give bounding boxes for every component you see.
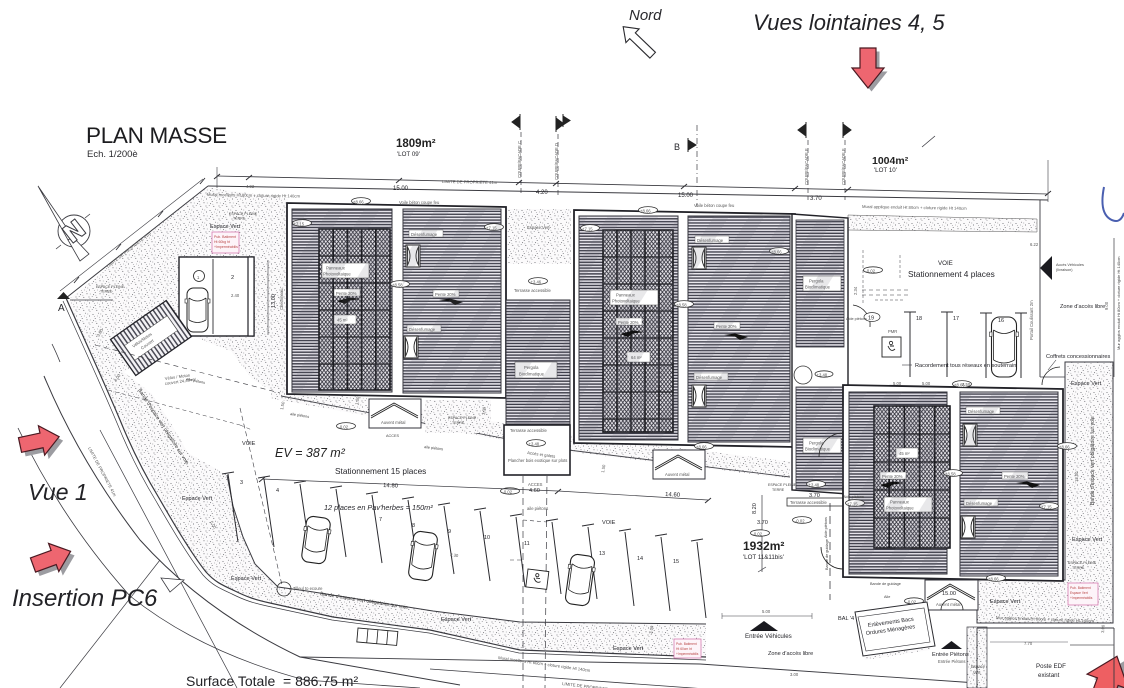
svg-text:Surface Totale = 886.75 m²: Surface Totale = 886.75 m² <box>186 673 358 688</box>
svg-text:1932m²: 1932m² <box>743 539 784 553</box>
svg-text:Entrée Piétons: Entrée Piétons <box>938 659 965 664</box>
svg-text:Ech. 1/200è: Ech. 1/200è <box>87 149 138 160</box>
svg-text:Bande de guidage: Bande de guidage <box>825 539 829 570</box>
svg-text:EV = 387 m²: EV = 387 m² <box>275 446 346 460</box>
svg-text:Voile béton coupe feu: Voile béton coupe feu <box>399 200 440 205</box>
svg-text:4: 4 <box>276 488 279 494</box>
svg-text:'LOT 11&11bis': 'LOT 11&11bis' <box>743 554 784 561</box>
svg-text:Pub. Batiment: Pub. Batiment <box>676 642 697 646</box>
svg-text:Zone d'accès libre: Zone d'accès libre <box>1060 304 1105 310</box>
svg-text:8: 8 <box>412 523 415 529</box>
svg-text:TERRE: TERRE <box>233 217 246 221</box>
svg-text:Espace Vert: Espace Vert <box>527 225 550 230</box>
svg-text:ESPACE PLEINE: ESPACE PLEINE <box>448 416 477 420</box>
svg-text:-0.02: -0.02 <box>795 519 805 524</box>
svg-text:9: 9 <box>448 529 451 535</box>
svg-text:6.22: 6.22 <box>1030 242 1039 247</box>
svg-text:Espace Vert: Espace Vert <box>1072 537 1103 543</box>
svg-text:Insertion PC6: Insertion PC6 <box>12 585 158 612</box>
svg-text:18: 18 <box>916 316 922 322</box>
svg-text:existant: existant <box>1038 672 1060 679</box>
svg-text:Entrée Véhicules: Entrée Véhicules <box>745 633 792 640</box>
svg-text:12 places en Pav'herbes = 150m: 12 places en Pav'herbes = 150m² <box>324 503 433 512</box>
svg-text:15.00: 15.00 <box>678 193 694 199</box>
svg-text:ESPACE PLEINE: ESPACE PLEINE <box>1068 561 1097 565</box>
svg-text:14: 14 <box>637 556 643 562</box>
svg-text:PMR: PMR <box>888 329 897 334</box>
svg-text:'LOT 09': 'LOT 09' <box>397 151 420 158</box>
svg-text:TERRE: TERRE <box>452 421 465 425</box>
svg-text:Stationnement 15 places: Stationnement 15 places <box>335 466 426 476</box>
svg-text:Stationnement 4 places: Stationnement 4 places <box>908 269 995 279</box>
svg-text:15.00: 15.00 <box>393 186 409 192</box>
svg-text:4.60: 4.60 <box>529 488 540 494</box>
svg-text:-0.02: -0.02 <box>753 532 763 537</box>
svg-text:ACCES: ACCES <box>386 434 400 438</box>
svg-text:Entrée Piétons: Entrée Piétons <box>932 652 969 658</box>
svg-text:Espace Vert: Espace Vert <box>1070 591 1088 595</box>
svg-text:TERRE: TERRE <box>772 488 785 492</box>
svg-text:.94: .94 <box>929 437 934 443</box>
svg-text:15: 15 <box>673 559 679 565</box>
svg-text:ESPACE PLEINE: ESPACE PLEINE <box>768 483 797 487</box>
svg-text:2.34: 2.34 <box>853 286 858 295</box>
svg-text:+3.48: +3.48 <box>529 442 540 447</box>
svg-text:TERRE: TERRE <box>100 290 113 294</box>
svg-text:1809m²: 1809m² <box>396 138 436 150</box>
svg-text:13.00: 13.00 <box>271 294 277 308</box>
svg-text:Aide piétons: Aide piétons <box>846 317 867 321</box>
svg-text:Auvent métal: Auvent métal <box>665 472 690 477</box>
svg-text:+3.48: +3.48 <box>817 373 828 378</box>
svg-text:Espace Vert: Espace Vert <box>1071 381 1102 387</box>
svg-text:3.00: 3.00 <box>790 672 799 677</box>
svg-text:Racordement tous réseaux en so: Racordement tous réseaux en souterrain <box>915 363 1016 369</box>
svg-text:2: 2 <box>231 275 234 281</box>
svg-text:aile piétons: aile piétons <box>527 506 548 511</box>
svg-text:Plancher bois exotique sur plo: Plancher bois exotique sur plots <box>508 458 567 463</box>
svg-text:14.80: 14.80 <box>383 483 399 490</box>
svg-text:Espace Vert: Espace Vert <box>182 496 213 502</box>
svg-text:B: B <box>674 142 680 152</box>
svg-text:11: 11 <box>524 541 530 547</box>
svg-text:Poste EDF: Poste EDF <box>1036 663 1066 670</box>
svg-text:Portail Coulissant 2m: Portail Coulissant 2m <box>1029 300 1034 340</box>
svg-text:TERRE: TERRE <box>1072 566 1085 570</box>
svg-text:ESPACE PLEINE: ESPACE PLEINE <box>96 285 125 289</box>
svg-text:5.00: 5.00 <box>762 609 771 614</box>
svg-text:-0.02: -0.02 <box>866 269 876 274</box>
svg-text:Pub. Batiment: Pub. Batiment <box>1070 586 1091 590</box>
svg-text:+8.66: +8.66 <box>696 445 707 450</box>
svg-text:-0.02: -0.02 <box>339 425 349 430</box>
svg-text:Espace: Espace <box>971 664 986 669</box>
svg-text:Auvent métal: Auvent métal <box>381 420 406 425</box>
svg-text:+Imperméabilis: +Imperméabilis <box>676 652 699 656</box>
svg-text:Espace Vert: Espace Vert <box>441 617 472 623</box>
svg-text:3.70: 3.70 <box>757 520 768 526</box>
svg-text:Espace Vert: Espace Vert <box>990 599 1021 605</box>
svg-text:2.40: 2.40 <box>231 293 240 298</box>
svg-text:15.00: 15.00 <box>942 591 956 597</box>
svg-text:Ht 60cm ht: Ht 60cm ht <box>676 647 692 651</box>
svg-text:Coffrets concessionnaires: Coffrets concessionnaires <box>1046 354 1110 360</box>
svg-text:Nord: Nord <box>629 7 662 24</box>
svg-text:Accès Véhicules: Accès Véhicules <box>1056 263 1084 267</box>
svg-text:19: 19 <box>868 316 874 322</box>
svg-text:Espace Vert: Espace Vert <box>231 576 262 582</box>
svg-text:16: 16 <box>998 318 1004 324</box>
svg-text:Espace Vert: Espace Vert <box>613 646 644 652</box>
svg-text:Pub. Batiment: Pub. Batiment <box>214 235 236 239</box>
svg-text:4.92: 4.92 <box>246 184 255 189</box>
svg-text:LIMITE DE PROPRIETE 41m: LIMITE DE PROPRIETE 41m <box>442 179 498 185</box>
svg-text:13: 13 <box>599 551 605 557</box>
svg-text:Voile béton coupe feu: Voile béton coupe feu <box>694 203 735 208</box>
svg-text:'LOT 10': 'LOT 10' <box>874 167 897 174</box>
svg-text:4.20: 4.20 <box>536 190 548 196</box>
svg-text:3.00: 3.00 <box>481 406 487 415</box>
svg-text:17: 17 <box>953 316 959 322</box>
svg-text:(livraison): (livraison) <box>1056 268 1073 272</box>
svg-text:Vue 1: Vue 1 <box>28 479 88 505</box>
svg-text:A: A <box>58 303 65 314</box>
svg-text:1004m²: 1004m² <box>872 155 909 167</box>
svg-text:9.00: 9.00 <box>1104 301 1109 310</box>
svg-text:+Imperméabilis: +Imperméabilis <box>214 245 238 249</box>
svg-text:Tilleul to ecoure: Tilleul to ecoure <box>293 586 323 591</box>
svg-text:ACCES: ACCES <box>528 482 543 487</box>
svg-text:Terrasse accessible: Terrasse accessible <box>790 500 827 505</box>
svg-text:+Imperméabilis: +Imperméabilis <box>1070 596 1093 600</box>
svg-text:10: 10 <box>484 535 490 541</box>
svg-text:Aide piétons: Aide piétons <box>843 495 864 499</box>
svg-text:Aile: Aile <box>884 595 890 599</box>
svg-text:Vues lointaines 4, 5: Vues lointaines 4, 5 <box>753 10 945 35</box>
svg-text:Zone d'accès libre: Zone d'accès libre <box>768 651 813 657</box>
svg-text:8.20: 8.20 <box>752 503 758 514</box>
svg-text:+3.46: +3.46 <box>531 280 542 285</box>
svg-text:+8.66: +8.66 <box>640 209 651 214</box>
svg-text:Aide piétons: Aide piétons <box>824 517 828 538</box>
svg-text:3: 3 <box>240 480 243 486</box>
svg-text:+8.58: +8.58 <box>392 283 403 288</box>
svg-text:VOIE: VOIE <box>242 441 256 447</box>
svg-text:Espace Vert: Espace Vert <box>210 224 241 230</box>
svg-text:BAL '4: BAL '4 <box>838 616 854 622</box>
svg-text:Chemineau: Chemineau <box>279 288 284 310</box>
svg-text:PLAN MASSE: PLAN MASSE <box>86 123 227 148</box>
svg-text:Ht 60kg ht: Ht 60kg ht <box>214 240 230 244</box>
svg-text:2.27: 2.27 <box>932 406 937 415</box>
svg-text:+8.66: +8.66 <box>353 200 364 205</box>
svg-text:ESPACE PLEINE: ESPACE PLEINE <box>229 212 258 216</box>
svg-text:14.60: 14.60 <box>665 492 681 499</box>
svg-text:-0.02: -0.02 <box>503 490 513 495</box>
svg-text:Terrasse accessible: Terrasse accessible <box>510 428 547 433</box>
svg-text:3.70: 3.70 <box>810 196 822 202</box>
svg-text:5.00: 5.00 <box>922 381 931 386</box>
svg-text:7: 7 <box>379 517 382 523</box>
svg-text:Bande de guidage: Bande de guidage <box>870 582 901 586</box>
svg-text:VOIE: VOIE <box>938 260 953 267</box>
svg-text:+8.66: +8.66 <box>1059 445 1070 450</box>
svg-text:Terrasse accessible: Terrasse accessible <box>514 288 551 293</box>
svg-text:Bande d'espace vert obligatoir: Bande d'espace vert obligatoire sur voie <box>1090 416 1096 505</box>
svg-text:2.50: 2.50 <box>962 382 971 387</box>
svg-text:3.00: 3.00 <box>1100 624 1106 633</box>
svg-text:Mur agglos enduit Ht 80cm + cl: Mur agglos enduit Ht 80cm + cloture rigi… <box>1116 256 1121 350</box>
svg-text:13.00: 13.00 <box>1074 471 1079 482</box>
svg-text:Auvent métal: Auvent métal <box>936 602 961 607</box>
svg-text:VOIE: VOIE <box>602 520 616 526</box>
svg-text:+8.66: +8.66 <box>988 577 999 582</box>
svg-text:5.00: 5.00 <box>893 381 902 386</box>
